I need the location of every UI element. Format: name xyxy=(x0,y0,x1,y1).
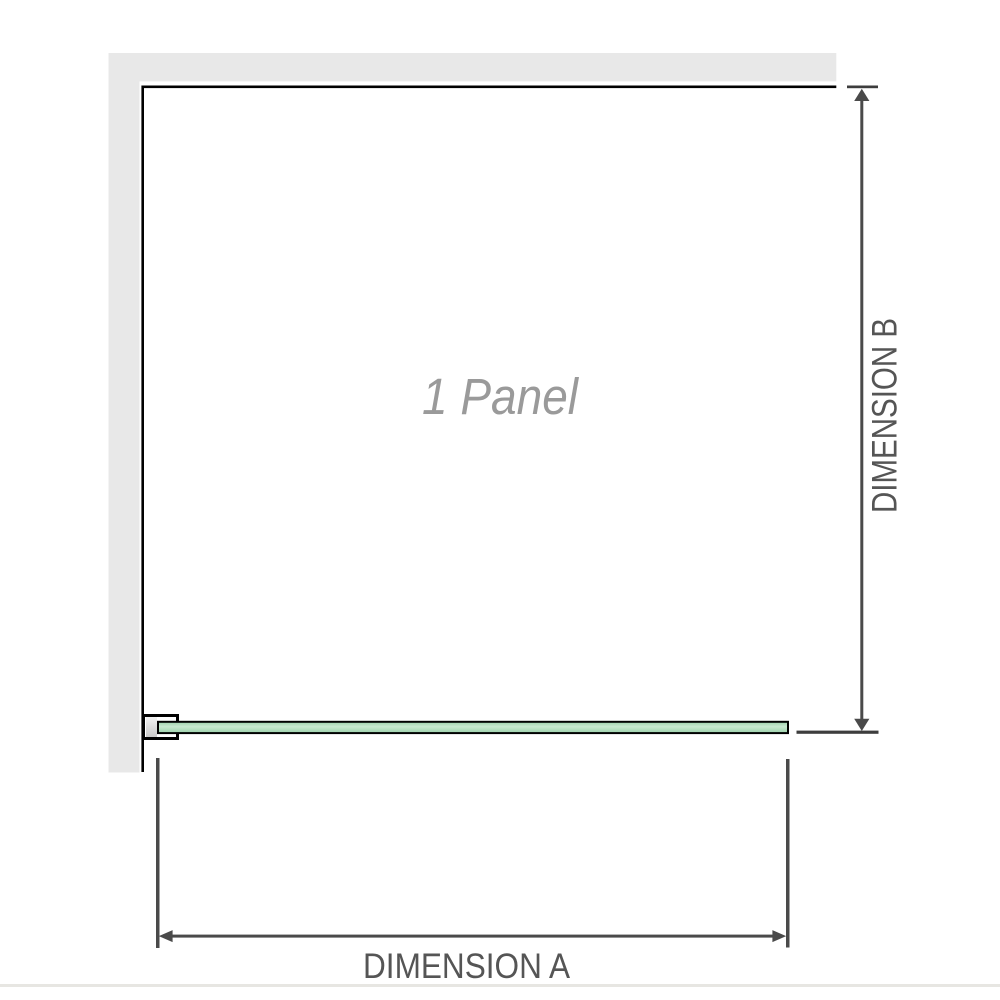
svg-text:1 Panel: 1 Panel xyxy=(422,368,579,425)
svg-text:DIMENSION A: DIMENSION A xyxy=(363,947,571,986)
svg-text:DIMENSION B: DIMENSION B xyxy=(866,318,905,513)
